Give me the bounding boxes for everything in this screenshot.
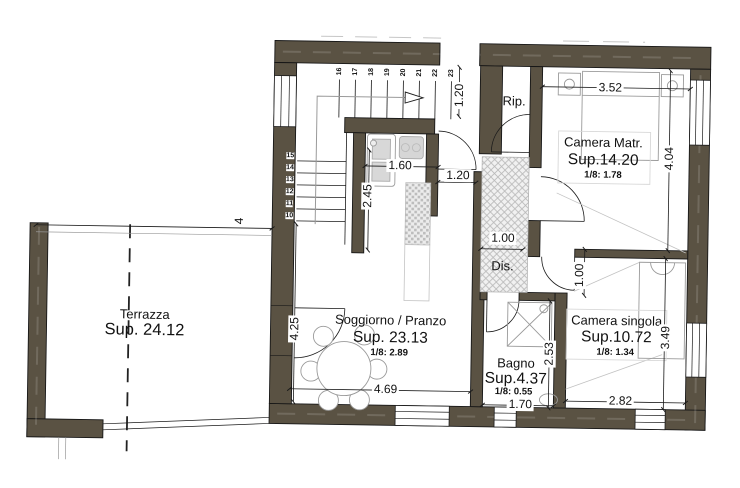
- stair-step-number: 19: [384, 68, 391, 76]
- dim-label-bagno-width: 1.70: [507, 398, 535, 411]
- dim-label-hall-door: 1.20: [444, 169, 472, 182]
- stair-step-number: 18: [368, 68, 375, 76]
- dim-label-landing: 1.20: [453, 82, 466, 110]
- room-label-terrazza-sup: Sup. 24.12: [104, 321, 184, 340]
- room-label-terrazza-name: Terrazza: [120, 307, 170, 321]
- dim-label-kitchen-depth: 2.45: [361, 182, 374, 210]
- stair-step-number: 20: [400, 69, 407, 77]
- dim-label-soggiorno-width: 4.69: [372, 383, 400, 396]
- stair-step-number: 23: [448, 69, 455, 77]
- room-label-bagno-name: Bagno: [497, 356, 535, 370]
- kitchen-stove: [399, 136, 423, 158]
- stair-step-number: 21: [416, 69, 423, 77]
- plan-drawing: Terrazza Sup. 24.12 Soggiorno / Pranzo S…: [0, 0, 740, 488]
- dim-label-singola-door: 1.00: [573, 262, 586, 290]
- room-label-camera-matr-name: Camera Matr.: [564, 135, 643, 150]
- stair-step-number: 16: [336, 68, 343, 76]
- dim-label-dis-width: 1.00: [489, 232, 517, 245]
- room-label-soggiorno-name: Soggiorno / Pranzo: [335, 313, 446, 328]
- exterior-walls: [27, 37, 711, 448]
- room-label-camera-singola-ratio: 1/8: 1.34: [596, 348, 634, 359]
- floor-plan: Terrazza Sup. 24.12 Soggiorno / Pranzo S…: [0, 0, 740, 488]
- room-label-camera-matr-ratio: 1/8: 1.78: [584, 170, 622, 181]
- stair-step-number: 15: [286, 152, 294, 159]
- roof-overhang-lines: [321, 36, 645, 42]
- dim-label-kitchen-width: 1.60: [386, 159, 414, 172]
- room-label-rip: Rip.: [502, 94, 525, 108]
- stair-step-number: 22: [432, 69, 439, 77]
- stair-step-number: 12: [286, 188, 294, 195]
- stair-step-number: 10: [285, 212, 293, 219]
- stair-step-number: 11: [286, 200, 294, 207]
- dim-label-matr-width: 3.52: [597, 81, 625, 94]
- ceiling-slope-lines: [554, 193, 687, 391]
- dim-label-terrace-top: 4: [233, 216, 246, 227]
- room-label-bagno-ratio: 1/8: 0.55: [495, 387, 533, 398]
- stair-step-number: 13: [286, 176, 294, 183]
- dim-label-bagno-height: 2.53: [543, 340, 556, 368]
- room-label-camera-singola-name: Camera singola: [571, 313, 662, 328]
- dim-label-singola-height: 3.49: [659, 324, 672, 352]
- dim-label-matr-height: 4.04: [663, 145, 676, 173]
- room-label-soggiorno-ratio: 1/8: 2.89: [370, 348, 408, 359]
- stair-step-number: 14: [286, 164, 294, 171]
- dim-label-soggiorno-height: 4.25: [288, 315, 301, 343]
- room-label-soggiorno-sup: Sup. 23.13: [353, 330, 428, 347]
- wall-texture: [36, 48, 703, 443]
- stair-direction-arrow: [405, 92, 423, 103]
- stair-step-number: 17: [352, 68, 359, 76]
- room-label-camera-singola-sup: Sup.10.72: [581, 329, 652, 346]
- dim-label-singola-width: 2.82: [607, 394, 635, 407]
- room-label-dis: Dis.: [491, 259, 514, 273]
- room-label-camera-matr-sup: Sup.14.20: [568, 152, 639, 169]
